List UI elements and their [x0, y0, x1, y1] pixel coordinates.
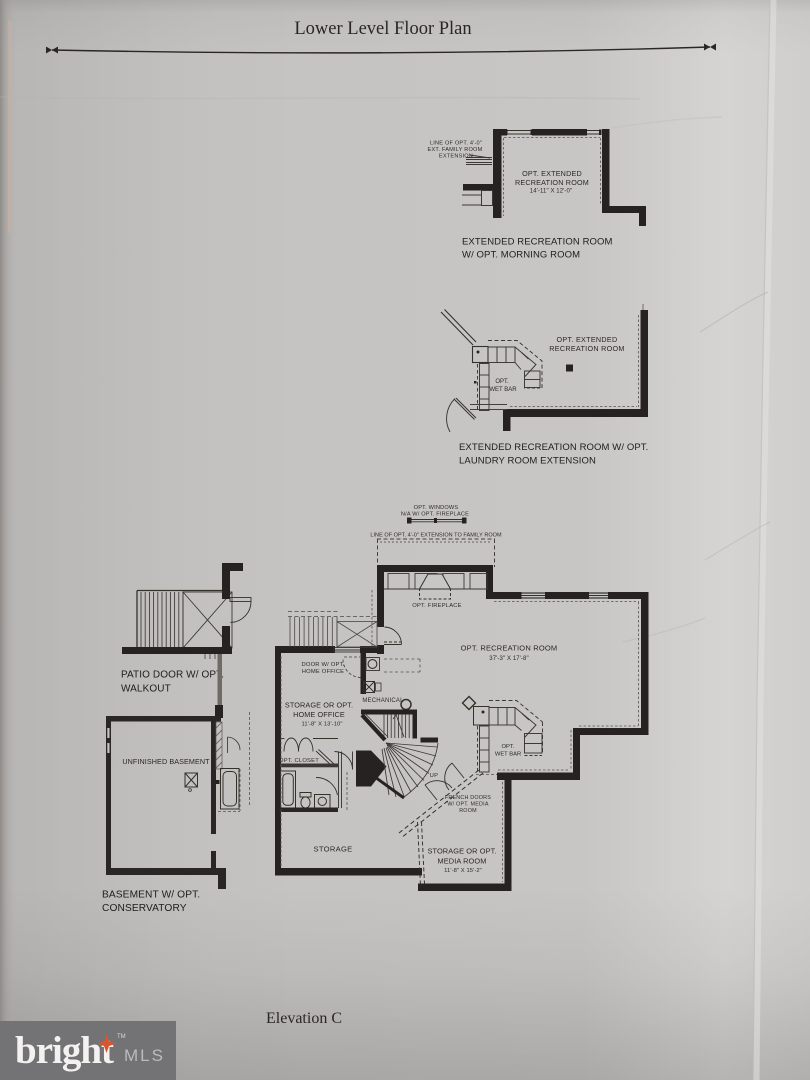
svg-text:ROOM: ROOM: [459, 808, 477, 814]
svg-text:BASEMENT W/ OPT.: BASEMENT W/ OPT.: [102, 890, 200, 901]
svg-text:Elevation C: Elevation C: [266, 1010, 342, 1027]
svg-text:MEDIA ROOM: MEDIA ROOM: [437, 857, 486, 866]
svg-text:STORAGE OR OPT.: STORAGE OR OPT.: [427, 847, 496, 856]
svg-text:WALKOUT: WALKOUT: [121, 684, 171, 695]
svg-text:W/ OPT. MORNING ROOM: W/ OPT. MORNING ROOM: [462, 250, 580, 261]
svg-text:OPT.: OPT.: [495, 379, 509, 385]
svg-text:LINE OF OPT. 4'-0" EXTENSION T: LINE OF OPT. 4'-0" EXTENSION TO FAMILY R…: [370, 533, 502, 539]
svg-text:FRENCH DOORS: FRENCH DOORS: [445, 795, 491, 801]
svg-text:OPT. EXTENDED: OPT. EXTENDED: [556, 335, 617, 344]
svg-text:MLS: MLS: [124, 1046, 165, 1065]
svg-text:RECREATION ROOM: RECREATION ROOM: [549, 344, 624, 353]
svg-text:LAUNDRY ROOM EXTENSION: LAUNDRY ROOM EXTENSION: [459, 456, 596, 467]
svg-text:37'-3" X 17'-8": 37'-3" X 17'-8": [489, 656, 528, 662]
svg-text:CONSERVATORY: CONSERVATORY: [102, 903, 187, 914]
svg-text:11'-8" X 15'-2": 11'-8" X 15'-2": [444, 868, 482, 874]
svg-text:RECREATION ROOM: RECREATION ROOM: [515, 178, 589, 187]
svg-text:OPT. CLOSET: OPT. CLOSET: [279, 758, 319, 764]
svg-text:HOME OFFICE: HOME OFFICE: [293, 710, 345, 719]
svg-text:WET BAR: WET BAR: [495, 752, 521, 758]
svg-text:MECHANICAL: MECHANICAL: [362, 698, 404, 704]
svg-text:TM: TM: [117, 1034, 126, 1040]
svg-text:DOOR W/ OPT.: DOOR W/ OPT.: [302, 662, 345, 668]
svg-text:OPT. EXTENDED: OPT. EXTENDED: [522, 169, 582, 178]
svg-text:OPT. RECREATION ROOM: OPT. RECREATION ROOM: [461, 644, 558, 653]
svg-text:STORAGE: STORAGE: [313, 845, 352, 854]
svg-text:W/ OPT. MEDIA: W/ OPT. MEDIA: [447, 802, 488, 808]
svg-text:WET BAR: WET BAR: [489, 387, 517, 393]
svg-text:LINE OF OPT. 4'-0": LINE OF OPT. 4'-0": [430, 141, 482, 147]
svg-text:11'-8" X 13'-10": 11'-8" X 13'-10": [301, 722, 342, 728]
svg-text:STORAGE OR OPT.: STORAGE OR OPT.: [285, 701, 353, 710]
svg-text:EXTENSION: EXTENSION: [439, 154, 473, 160]
svg-text:UNFINISHED BASEMENT: UNFINISHED BASEMENT: [122, 757, 210, 766]
svg-text:N/A W/ OPT. FIREPLACE: N/A W/ OPT. FIREPLACE: [401, 512, 469, 518]
svg-text:EXT. FAMILY ROOM: EXT. FAMILY ROOM: [428, 147, 483, 153]
svg-text:OPT. WINDOWS: OPT. WINDOWS: [414, 505, 459, 511]
svg-text:EXTENDED RECREATION ROOM W/ OP: EXTENDED RECREATION ROOM W/ OPT.: [459, 442, 648, 453]
svg-text:bright: bright: [15, 1029, 114, 1072]
svg-text:OPT. FIREPLACE: OPT. FIREPLACE: [412, 603, 462, 609]
svg-text:HOME OFFICE: HOME OFFICE: [302, 669, 344, 675]
svg-text:PATIO DOOR W/ OPT.: PATIO DOOR W/ OPT.: [121, 670, 224, 681]
svg-text:UP: UP: [430, 773, 439, 779]
svg-text:Lower Level Floor Plan: Lower Level Floor Plan: [294, 19, 471, 39]
svg-text:EXTENDED RECREATION ROOM: EXTENDED RECREATION ROOM: [462, 237, 613, 248]
svg-text:14'-11" X 12'-0": 14'-11" X 12'-0": [530, 189, 572, 195]
svg-text:OPT.: OPT.: [502, 744, 515, 750]
